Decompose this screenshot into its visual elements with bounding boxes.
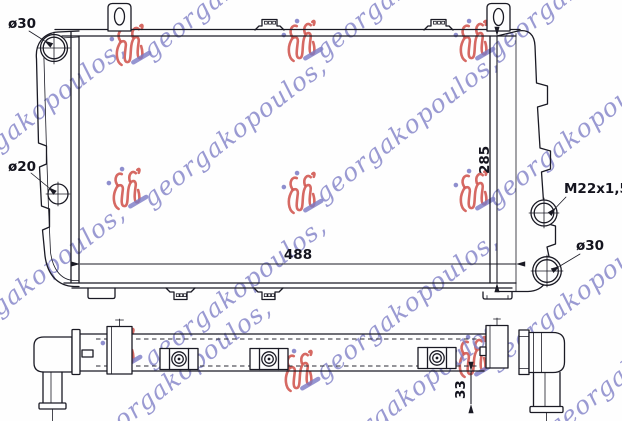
radiator-technical-drawing-page: georgakopoulos, georgakopoulos, georgako…: [0, 0, 622, 421]
label-port-thread: M22x1,5: [556, 181, 622, 208]
top-clip-right: [424, 20, 453, 31]
bolt-bracket: [160, 349, 198, 370]
left-inlet-fitting: [34, 330, 93, 421]
dim-width-label: 488: [284, 247, 312, 263]
watermark-text: georgakopoulos,: [137, 51, 332, 212]
right-outlet-fitting: [519, 330, 565, 421]
threaded-port-right: [529, 198, 559, 228]
top-mounting-bracket-left: [108, 4, 131, 32]
bolt-bracket: [418, 348, 456, 369]
left-clamp-bracket: [107, 319, 132, 374]
drain-port-top-left: [38, 32, 70, 64]
port-thread-label: M22x1,5: [564, 181, 622, 197]
dim-height-label: 285: [477, 146, 493, 174]
top-mounting-bracket-right: [487, 4, 510, 32]
port-left-label: ø20: [8, 159, 36, 175]
port-left-small: [46, 182, 70, 206]
label-port-top-left: ø30: [8, 16, 44, 41]
bolt-bracket: [250, 349, 288, 370]
top-clip-left: [255, 20, 284, 31]
label-port-left: ø20: [8, 159, 48, 187]
radiator-technical-drawing: georgakopoulos, georgakopoulos, georgako…: [0, 0, 622, 421]
dim-depth-label: 33: [453, 380, 469, 399]
port-bottom-right-label: ø30: [576, 238, 604, 254]
outlet-port-bottom-right: [531, 255, 563, 287]
watermark-text: georgakopoulos,: [309, 47, 504, 208]
port-top-left-label: ø30: [8, 16, 36, 32]
